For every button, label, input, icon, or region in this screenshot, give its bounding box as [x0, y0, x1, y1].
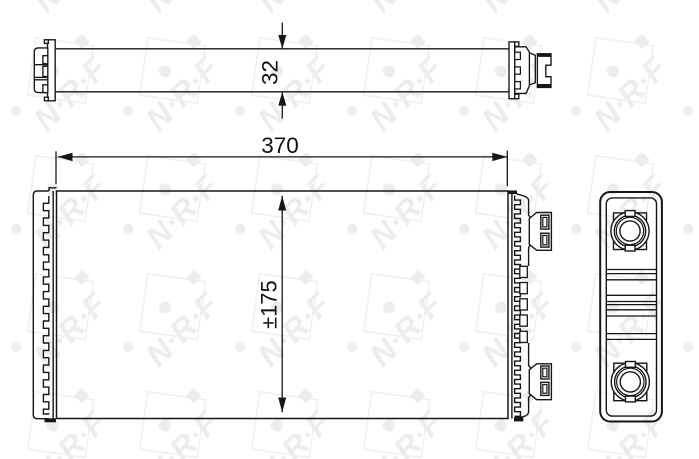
svg-text:370: 370: [261, 133, 299, 158]
svg-text:32: 32: [258, 60, 283, 85]
svg-text:±175: ±175: [257, 280, 282, 329]
